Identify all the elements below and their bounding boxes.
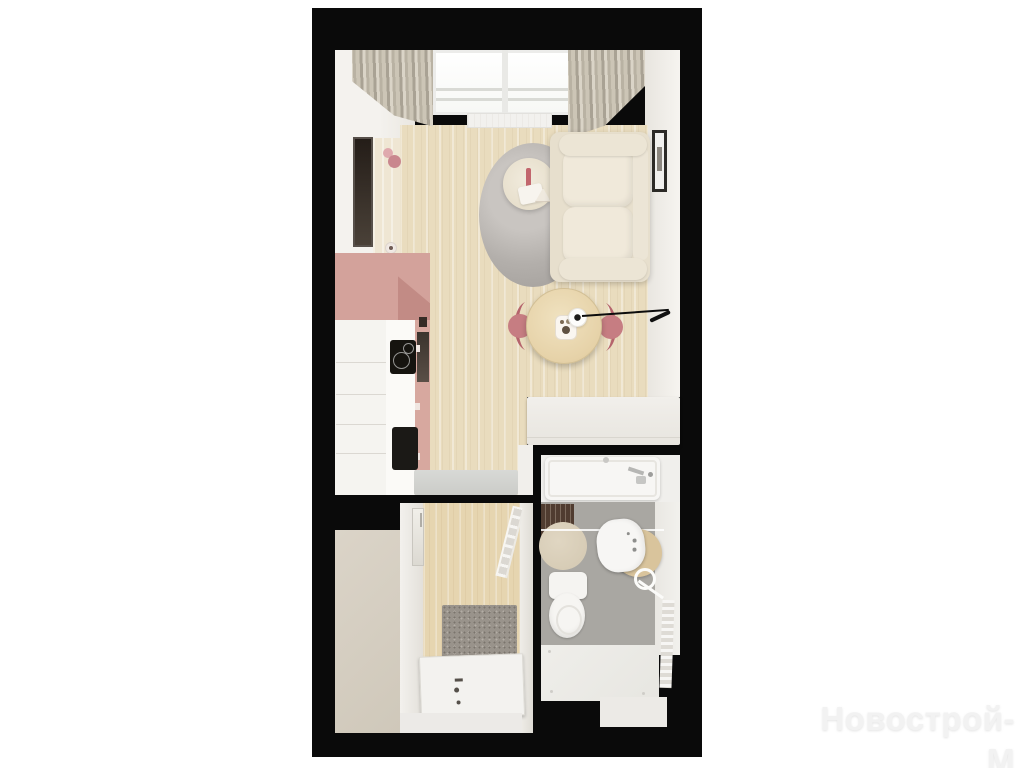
window-mullion	[502, 50, 508, 115]
sofa-backrest	[633, 148, 648, 260]
floor-screw	[642, 692, 645, 695]
door-threshold	[400, 713, 522, 733]
living-right-wall	[645, 50, 680, 397]
wall-strip	[518, 445, 533, 495]
floor-screw	[548, 650, 551, 653]
sofa-armrest	[559, 134, 647, 156]
drain-icon	[603, 457, 609, 463]
wall-mirror	[353, 137, 373, 247]
induction-hob	[390, 340, 416, 374]
cabinet-handle	[415, 403, 420, 410]
floor-screw	[550, 690, 553, 693]
wall-picture	[652, 130, 667, 192]
dining-chair	[601, 301, 625, 353]
hallway-wardrobe	[335, 530, 400, 733]
radiator	[467, 113, 552, 128]
entrance-door	[419, 653, 525, 719]
window-glazing-bar	[436, 88, 502, 91]
bath-faucet-icon	[636, 476, 646, 484]
sofa-armrest	[559, 258, 647, 280]
white-wardrobe	[527, 397, 680, 445]
window-glazing-bar	[436, 98, 502, 101]
drawer-seam	[336, 424, 386, 425]
oven-front	[417, 332, 429, 382]
wall-sconce-icon	[388, 155, 401, 168]
bath-faucet-icon	[648, 472, 653, 477]
kitchen-sink	[392, 427, 418, 470]
screenshot: Новострой-М	[0, 0, 1017, 768]
sofa-cushion	[563, 150, 633, 207]
sofa-cushion	[563, 207, 633, 263]
hallway-mirror	[412, 508, 424, 566]
bathroom-floor-extension	[600, 697, 667, 727]
pendant-light	[569, 309, 586, 326]
toilet-bowl	[549, 593, 585, 638]
drawer-seam	[336, 362, 386, 363]
floor-plan	[312, 8, 702, 757]
drawer-seam	[336, 394, 386, 395]
gray-mat	[414, 470, 518, 495]
window-glazing-bar	[508, 88, 577, 91]
cabinet-handle	[419, 317, 427, 327]
towel-radiator	[659, 600, 674, 688]
watermark: Новострой-М	[815, 698, 1015, 740]
window-glazing-bar	[508, 98, 577, 101]
drawer-seam	[336, 453, 386, 454]
